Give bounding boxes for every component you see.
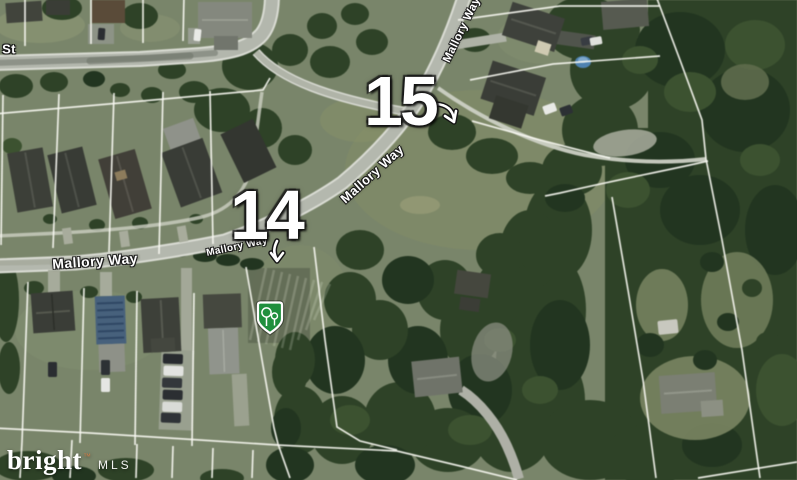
tree-badge-icon: [258, 303, 282, 334]
house-roof: [411, 357, 463, 398]
house-roof: [141, 297, 182, 353]
house-roof: [46, 0, 70, 15]
garden-plot: [92, 0, 125, 23]
house-roof-solar: [95, 295, 128, 372]
satellite-map-canvas[interactable]: St Mallory Way Mallory Way Mallory Way M…: [0, 0, 797, 480]
watermark-org: MLS: [98, 458, 132, 472]
house-roof: [31, 291, 76, 334]
watermark-brand: bright: [7, 445, 82, 476]
lot-marker-15: 15: [364, 66, 436, 136]
house-roof: [5, 1, 42, 23]
shed-roof: [657, 319, 678, 335]
lot-marker-14: 14: [230, 180, 302, 250]
trademark-symbol: ™: [83, 452, 91, 461]
watermark: bright ™ MLS: [7, 445, 132, 476]
house-roof: [601, 0, 649, 30]
street-label-st: St: [2, 42, 16, 57]
